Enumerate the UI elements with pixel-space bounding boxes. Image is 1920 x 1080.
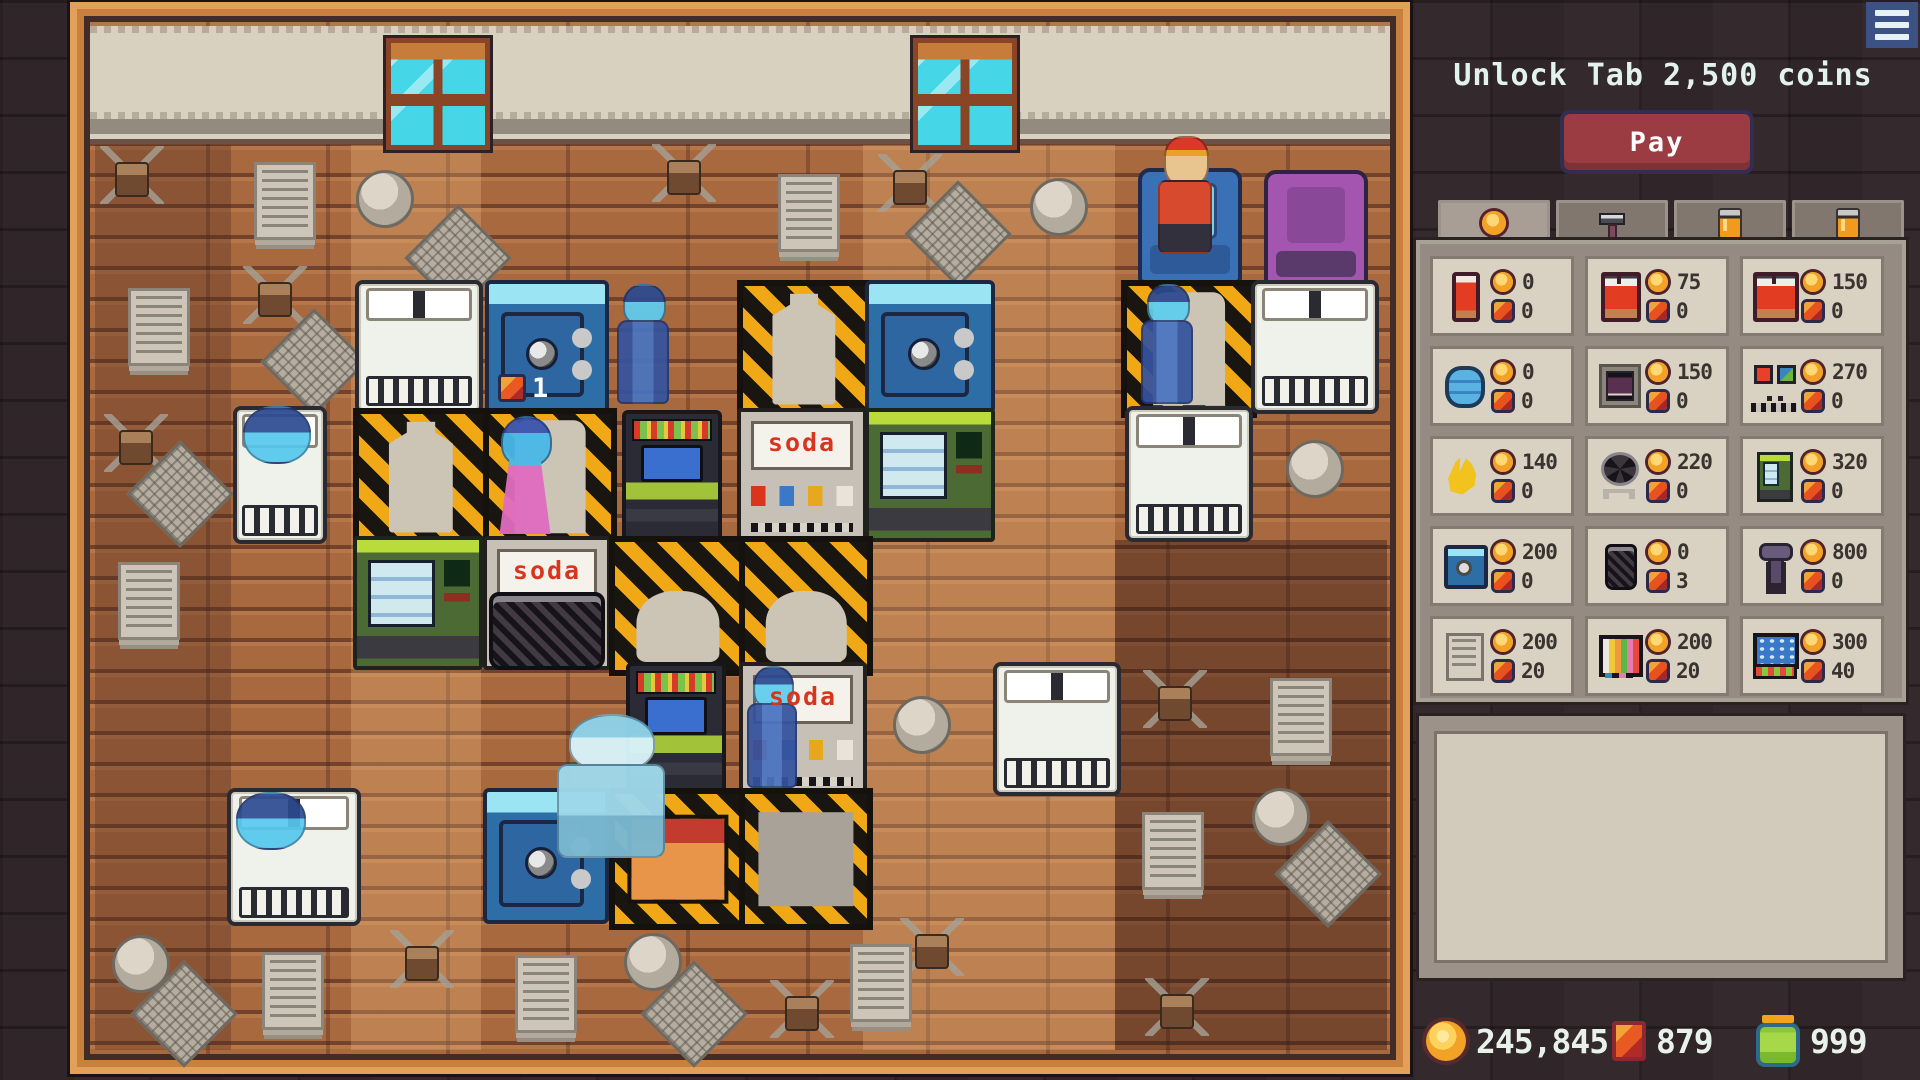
shop-tabs xyxy=(1438,200,1904,243)
coin-price: 270 xyxy=(1832,360,1867,384)
gem-icon xyxy=(1612,1021,1646,1061)
gem-price-row: 0 xyxy=(1803,478,1879,504)
price-list: 3200 xyxy=(1803,449,1879,504)
badge[interactable]: 1 xyxy=(498,372,568,404)
ghost-woman[interactable] xyxy=(492,416,558,534)
vending[interactable] xyxy=(865,408,995,542)
fan-icon xyxy=(1596,450,1642,502)
water-tank-iconzone xyxy=(1435,360,1493,412)
coin-icon xyxy=(1803,632,1823,652)
paper-decor xyxy=(1270,678,1332,756)
blob-silhouette xyxy=(636,591,719,663)
ghost-man[interactable] xyxy=(1138,284,1196,404)
coin-icon xyxy=(1493,362,1513,382)
coin-icon xyxy=(1426,1021,1466,1061)
bellhop[interactable] xyxy=(1154,136,1216,254)
arcade-machine-icon xyxy=(1751,630,1797,682)
coin-icon xyxy=(1493,542,1513,562)
coin-price: 800 xyxy=(1832,540,1867,564)
trash[interactable] xyxy=(489,592,605,670)
tab-canister-1[interactable] xyxy=(1674,200,1786,243)
price-list: 750 xyxy=(1648,269,1724,324)
coin-icon xyxy=(1648,362,1668,382)
price-list: 8000 xyxy=(1803,539,1879,594)
tv-icon xyxy=(1596,630,1642,682)
gem-price: 40 xyxy=(1831,659,1854,683)
gem-price: 0 xyxy=(1521,479,1533,503)
cobweb-decor xyxy=(390,930,454,988)
price-list: 00 xyxy=(1493,359,1569,414)
trash-bin-iconzone xyxy=(1590,540,1648,592)
coin-price-row: 200 xyxy=(1493,629,1569,655)
cobweb-decor xyxy=(243,266,307,324)
price-list: 1400 xyxy=(1493,449,1569,504)
gem-price-row: 0 xyxy=(1493,298,1569,324)
gem-price-row: 0 xyxy=(1648,388,1724,414)
coin-price: 0 xyxy=(1522,360,1534,384)
paper-decor xyxy=(262,952,324,1030)
coin-price: 200 xyxy=(1677,630,1712,654)
shop-item-water-tank[interactable]: 00 xyxy=(1430,346,1574,426)
shop-item-gate-buttons[interactable]: 2700 xyxy=(1740,346,1884,426)
tab-coins[interactable] xyxy=(1438,200,1550,243)
soda[interactable]: soda xyxy=(737,408,867,542)
cobweb-decor xyxy=(770,980,834,1038)
ball-decor xyxy=(356,170,414,228)
gem-price: 0 xyxy=(1521,569,1533,593)
price-list: 1500 xyxy=(1648,359,1724,414)
wallet-gem: 879 xyxy=(1612,1012,1713,1070)
gem-price-row: 0 xyxy=(1648,478,1724,504)
coin-price-row: 0 xyxy=(1648,539,1724,565)
furnace-icon xyxy=(1596,360,1642,412)
lever-iconzone xyxy=(1745,540,1803,592)
window[interactable] xyxy=(386,38,490,150)
coin-price-row: 75 xyxy=(1648,269,1724,295)
price-list: 03 xyxy=(1648,539,1724,594)
coin-price: 200 xyxy=(1522,540,1557,564)
window[interactable] xyxy=(913,38,1017,150)
price-list: 2200 xyxy=(1648,449,1724,504)
gem-price-row: 3 xyxy=(1648,568,1724,594)
price-list: 30040 xyxy=(1803,629,1879,684)
gem-icon xyxy=(1649,482,1667,500)
coin-icon xyxy=(1648,542,1668,562)
wallet-coin: 245,845 xyxy=(1426,1012,1608,1070)
bed-double[interactable] xyxy=(1125,406,1253,542)
gem-icon xyxy=(1804,662,1822,680)
gem-price-row: 40 xyxy=(1803,658,1879,684)
gem-icon xyxy=(1494,302,1512,320)
ball-decor xyxy=(1252,788,1310,846)
ball-decor xyxy=(893,696,951,754)
coin-icon xyxy=(1493,632,1513,652)
tab-tools[interactable] xyxy=(1556,200,1668,243)
cobweb-decor xyxy=(1145,978,1209,1036)
menu-button[interactable] xyxy=(1866,2,1918,48)
gem-price: 0 xyxy=(1521,389,1533,413)
price-list: 1500 xyxy=(1803,269,1879,324)
red-bed-iconzone xyxy=(1590,270,1648,322)
gem-icon xyxy=(1804,572,1822,590)
coin-price-row: 0 xyxy=(1493,359,1569,385)
gem-icon xyxy=(1494,572,1512,590)
wallet-coin-value: 245,845 xyxy=(1476,1022,1608,1061)
description-text xyxy=(1434,731,1888,963)
slab-silhouette xyxy=(758,812,853,906)
gem-price: 0 xyxy=(1831,479,1843,503)
gem-price-row: 0 xyxy=(1803,568,1879,594)
paper-decor xyxy=(128,288,190,366)
gem-price: 0 xyxy=(1831,389,1843,413)
vending-machine-iconzone xyxy=(1745,450,1803,502)
coin-icon xyxy=(1648,632,1668,652)
coin-price-row: 800 xyxy=(1803,539,1879,565)
gem-price-row: 20 xyxy=(1648,658,1724,684)
construction[interactable] xyxy=(739,788,873,930)
coin-price-row: 150 xyxy=(1803,269,1879,295)
vending-machine-icon xyxy=(1751,450,1797,502)
paper-decor xyxy=(1142,812,1204,890)
gem-icon xyxy=(1649,572,1667,590)
price-list: 20020 xyxy=(1648,629,1724,684)
pay-button[interactable]: Pay xyxy=(1560,110,1754,174)
shop-item-tv[interactable]: 20020 xyxy=(1585,616,1729,696)
coin-price: 220 xyxy=(1677,450,1712,474)
shop-item-red-double-bed[interactable]: 1500 xyxy=(1740,256,1884,336)
shop-item-newspaper[interactable]: 20020 xyxy=(1430,616,1574,696)
gem-price-row: 0 xyxy=(1493,478,1569,504)
tab-canister-2[interactable] xyxy=(1792,200,1904,243)
coin-icon xyxy=(1493,272,1513,292)
bed-double[interactable] xyxy=(1251,280,1379,414)
shop-item-bananas[interactable]: 1400 xyxy=(1430,436,1574,516)
coin-icon xyxy=(1648,272,1668,292)
coin-price: 0 xyxy=(1522,270,1534,294)
description-box xyxy=(1419,716,1903,978)
price-list: 2700 xyxy=(1803,359,1879,414)
shop-grid: 0075015000015002700140022003200200003800… xyxy=(1416,240,1906,702)
wallet: 245,845879999 xyxy=(1420,1012,1906,1070)
arcade-machine-iconzone xyxy=(1745,630,1803,682)
water-tank-icon xyxy=(1441,360,1487,412)
coin-price-row: 150 xyxy=(1648,359,1724,385)
arcade[interactable] xyxy=(622,410,722,540)
bananas-icon xyxy=(1441,450,1487,502)
gem-price: 0 xyxy=(1521,299,1533,323)
coin-icon xyxy=(1803,362,1823,382)
unlock-tab-label: Unlock Tab 2,500 coins xyxy=(1420,58,1906,93)
energy-icon xyxy=(1756,1023,1800,1067)
lever-icon xyxy=(1751,540,1797,592)
furnace-iconzone xyxy=(1590,360,1648,412)
gem-icon xyxy=(1649,302,1667,320)
gem-price-row: 0 xyxy=(1803,298,1879,324)
red-bed-icon xyxy=(1596,270,1642,322)
shop-item-lever[interactable]: 8000 xyxy=(1740,526,1884,606)
safe-icon xyxy=(1441,540,1487,592)
gem-price: 0 xyxy=(1676,479,1688,503)
ball-decor xyxy=(1286,440,1344,498)
coin-price-row: 270 xyxy=(1803,359,1879,385)
coin-price-row: 220 xyxy=(1648,449,1724,475)
can-icon xyxy=(1718,208,1742,239)
price-list: 00 xyxy=(1493,269,1569,324)
bedroll-iconzone xyxy=(1435,270,1493,322)
paper-decor xyxy=(850,944,912,1022)
bed-double[interactable] xyxy=(355,280,483,414)
gem-icon xyxy=(1804,392,1822,410)
wallet-gem-value: 879 xyxy=(1656,1022,1713,1061)
red-double-bed-icon xyxy=(1751,270,1797,322)
paper-decor xyxy=(515,955,577,1033)
gate-buttons-iconzone xyxy=(1745,360,1803,412)
bananas-iconzone xyxy=(1435,450,1493,502)
price-list: 20020 xyxy=(1493,629,1569,684)
gem-price: 0 xyxy=(1831,569,1843,593)
soda-label: soda xyxy=(755,677,851,715)
gem-price: 20 xyxy=(1676,659,1699,683)
construction[interactable] xyxy=(737,280,871,418)
cobweb-decor xyxy=(652,144,716,202)
coin-price: 140 xyxy=(1522,450,1557,474)
game-screen: 1sodasodasoda Unlock Tab 2,500 coins Pay… xyxy=(0,0,1920,1080)
coin-price: 150 xyxy=(1677,360,1712,384)
coin-price: 150 xyxy=(1832,270,1867,294)
gem-icon xyxy=(1804,482,1822,500)
shop-item-safe[interactable]: 2000 xyxy=(1430,526,1574,606)
hammer-icon xyxy=(1598,209,1626,237)
ball-decor xyxy=(1030,178,1088,236)
shop-item-vending-machine[interactable]: 3200 xyxy=(1740,436,1884,516)
construction[interactable] xyxy=(609,536,747,676)
coin-price-row: 0 xyxy=(1493,269,1569,295)
back-wall xyxy=(90,26,1390,144)
worker[interactable] xyxy=(552,714,670,864)
tv-iconzone xyxy=(1590,630,1648,682)
shop-item-fan[interactable]: 2200 xyxy=(1585,436,1729,516)
coin-price-row: 200 xyxy=(1493,539,1569,565)
shop-item-bedroll[interactable]: 00 xyxy=(1430,256,1574,336)
shop-item-trash-bin[interactable]: 03 xyxy=(1585,526,1729,606)
trash-bin-icon xyxy=(1596,540,1642,592)
price-list: 2000 xyxy=(1493,539,1569,594)
coin-price: 0 xyxy=(1677,540,1689,564)
gem-price: 0 xyxy=(1831,299,1843,323)
coin-price: 200 xyxy=(1522,630,1557,654)
shop-item-arcade-machine[interactable]: 30040 xyxy=(1740,616,1884,696)
coin-price: 75 xyxy=(1677,270,1700,294)
gem-price: 3 xyxy=(1676,569,1688,593)
fan-iconzone xyxy=(1590,450,1648,502)
coin-price-row: 320 xyxy=(1803,449,1879,475)
coin-icon xyxy=(1648,452,1668,472)
floor-band xyxy=(1115,540,1387,1050)
blob-silhouette xyxy=(766,591,847,663)
badge-label: 1 xyxy=(532,373,548,404)
coin-price-row: 300 xyxy=(1803,629,1879,655)
gem-price-row: 0 xyxy=(1493,388,1569,414)
safe-iconzone xyxy=(1435,540,1493,592)
coin-price: 300 xyxy=(1832,630,1867,654)
soda-label: soda xyxy=(753,423,851,461)
cobweb-decor xyxy=(1143,670,1207,728)
bedroll-icon xyxy=(1441,270,1487,322)
coin-icon xyxy=(1803,452,1823,472)
construction[interactable] xyxy=(353,408,489,546)
cobweb-decor xyxy=(100,146,164,204)
can-icon xyxy=(1836,208,1860,239)
gem-icon xyxy=(1494,662,1512,680)
gem-icon xyxy=(1649,392,1667,410)
coin-icon xyxy=(1803,542,1823,562)
shop-item-red-bed[interactable]: 750 xyxy=(1585,256,1729,336)
paper-decor xyxy=(118,562,180,640)
cobweb-decor xyxy=(878,154,942,212)
soda-label: soda xyxy=(499,551,595,589)
gem-icon xyxy=(1494,392,1512,410)
construction[interactable] xyxy=(739,536,873,676)
gate-buttons-icon xyxy=(1751,360,1797,412)
shop-item-furnace[interactable]: 1500 xyxy=(1585,346,1729,426)
wallet-energy: 999 xyxy=(1756,1012,1867,1070)
paper-decor xyxy=(254,162,316,240)
bottle-silhouette xyxy=(389,422,453,533)
coin-icon xyxy=(1493,452,1513,472)
hamburger-icon xyxy=(1875,10,1909,16)
gem-price: 20 xyxy=(1521,659,1544,683)
gem-price: 0 xyxy=(1676,299,1688,323)
vending[interactable] xyxy=(353,536,483,670)
ghost-sleep[interactable] xyxy=(243,406,311,464)
gem-icon xyxy=(1649,662,1667,680)
gem-icon xyxy=(1494,482,1512,500)
gem-price-row: 0 xyxy=(1803,388,1879,414)
wallet-energy-value: 999 xyxy=(1810,1022,1867,1061)
newspaper-iconzone xyxy=(1435,630,1493,682)
gem-price-row: 20 xyxy=(1493,658,1569,684)
coin-price-row: 140 xyxy=(1493,449,1569,475)
chair-purple[interactable] xyxy=(1264,170,1368,286)
newspaper-icon xyxy=(1441,630,1487,682)
bottle-silhouette xyxy=(772,294,835,405)
red-double-bed-iconzone xyxy=(1745,270,1803,322)
paper-decor xyxy=(778,174,840,252)
ghost-man[interactable] xyxy=(614,284,672,404)
gem-price-row: 0 xyxy=(1493,568,1569,594)
coin-icon xyxy=(1482,211,1506,235)
coin-price: 320 xyxy=(1832,450,1867,474)
coin-price-row: 200 xyxy=(1648,629,1724,655)
safe[interactable] xyxy=(865,280,995,414)
ghost-sleep[interactable] xyxy=(236,792,306,850)
gem-price: 0 xyxy=(1676,389,1688,413)
bed-double[interactable] xyxy=(993,662,1121,796)
gem-icon xyxy=(1804,302,1822,320)
gem-price-row: 0 xyxy=(1648,298,1724,324)
coin-icon xyxy=(1803,272,1823,292)
